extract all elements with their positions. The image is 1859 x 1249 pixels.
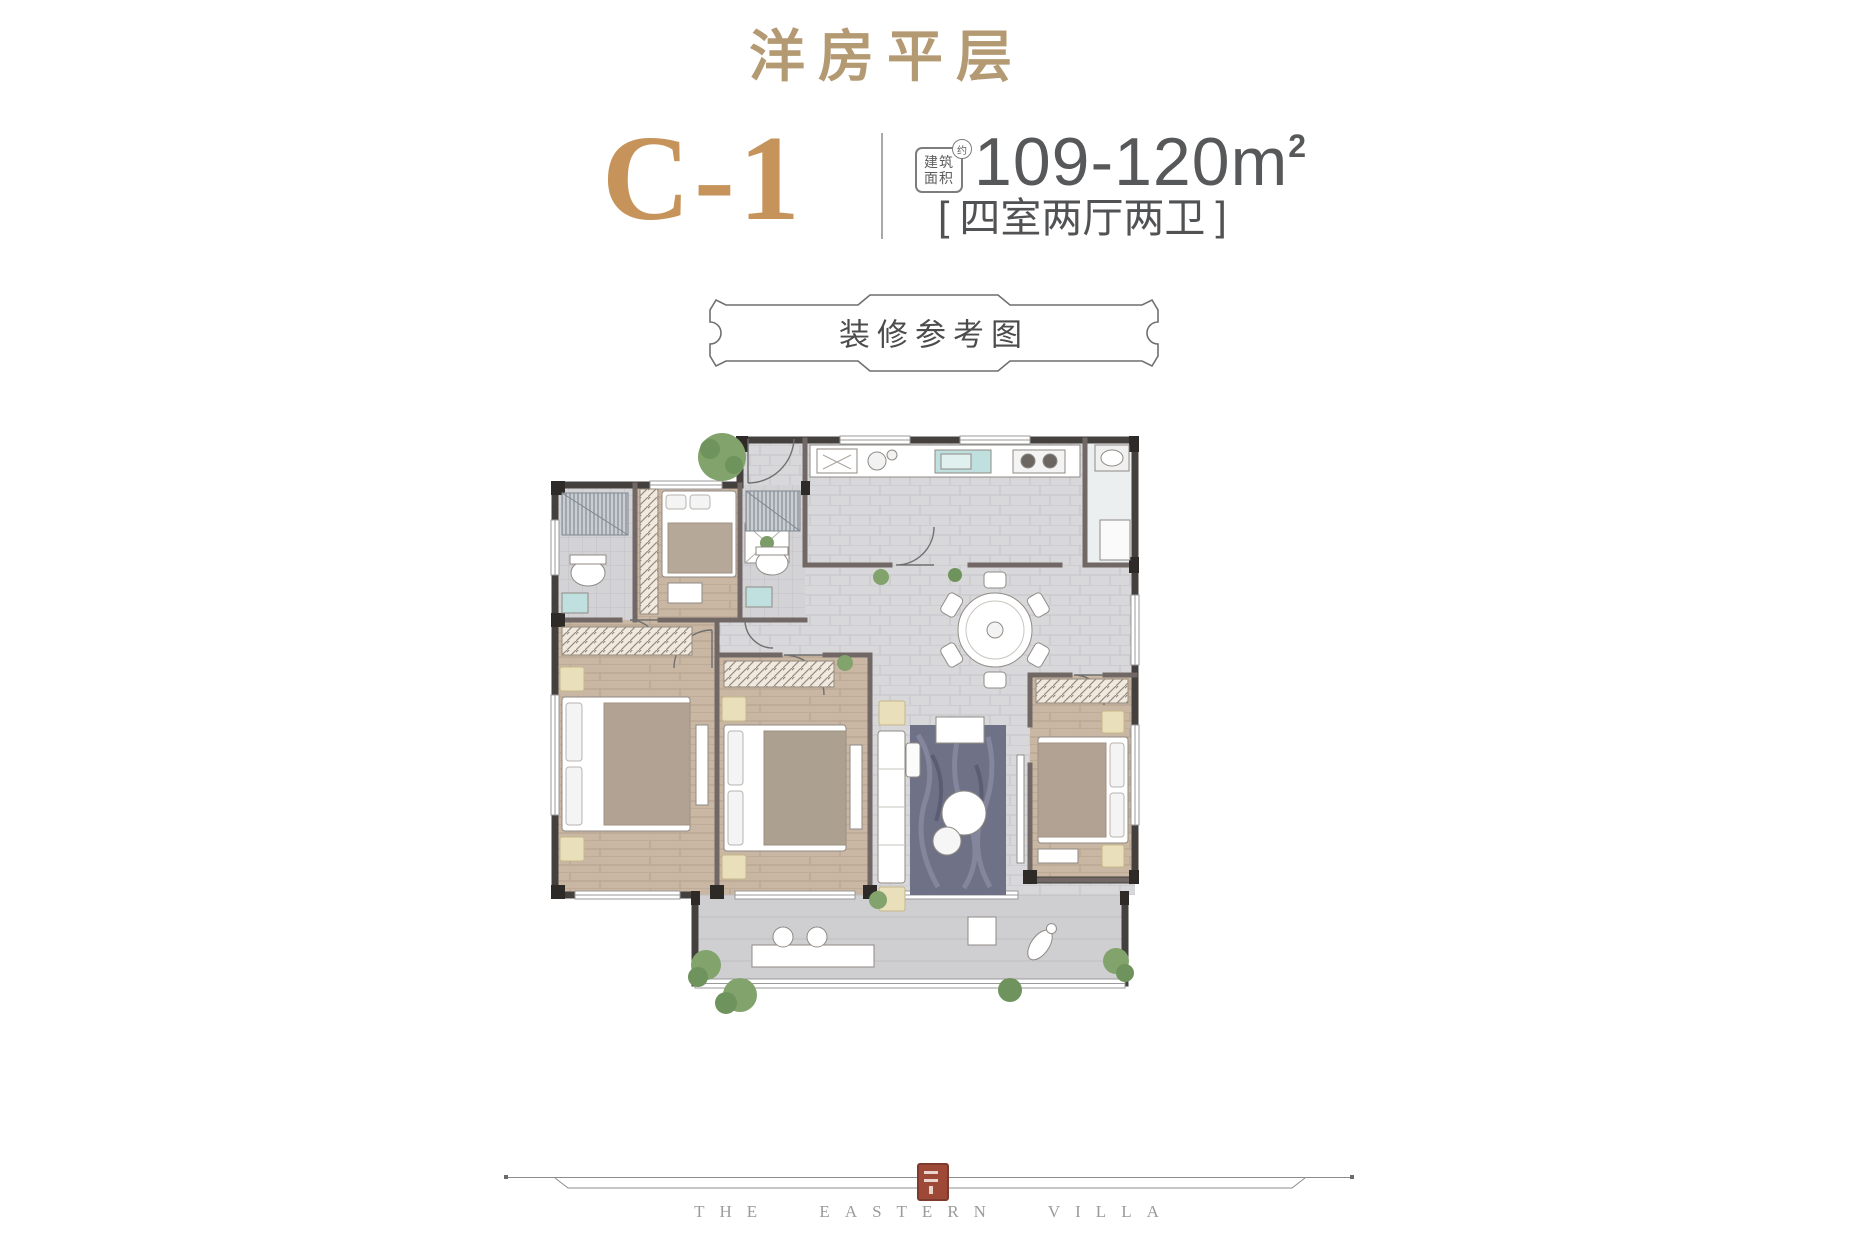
unit-code: C-1 [602,118,804,240]
approx-badge: 约 [952,139,972,159]
poster-page: 洋房平层 C-1 建筑 面积 约 109-120m2 [四室两厅两卫] 装修参考… [0,0,1859,1249]
layout-text: [四室两厅两卫] [928,198,1237,239]
floor-plan [540,425,1150,1045]
brand-seal [917,1163,949,1201]
reference-banner: 装修参考图 [700,292,1168,374]
brand-wordmark: THE EASTERN VILLA [694,1202,1174,1222]
area-value: 109-120m2 [974,128,1307,196]
area-superscript: 2 [1288,128,1307,164]
layout-rooms: 四室两厅两卫 [959,195,1205,241]
area-unit: m [1231,124,1289,200]
bracket-open: [ [938,193,949,239]
bracket-close: ] [1215,193,1226,239]
footer-rule-end-left [504,1175,508,1179]
header-divider [881,133,883,239]
area-badge-line1: 建筑 [924,154,954,170]
area-number: 109-120 [974,124,1231,200]
area-badge-line2: 面积 [924,170,954,186]
living-area [878,701,1024,911]
footer-rule-end-right [1350,1175,1354,1179]
page-title: 洋房平层 [749,12,1025,93]
banner-label: 装修参考图 [839,310,1029,355]
